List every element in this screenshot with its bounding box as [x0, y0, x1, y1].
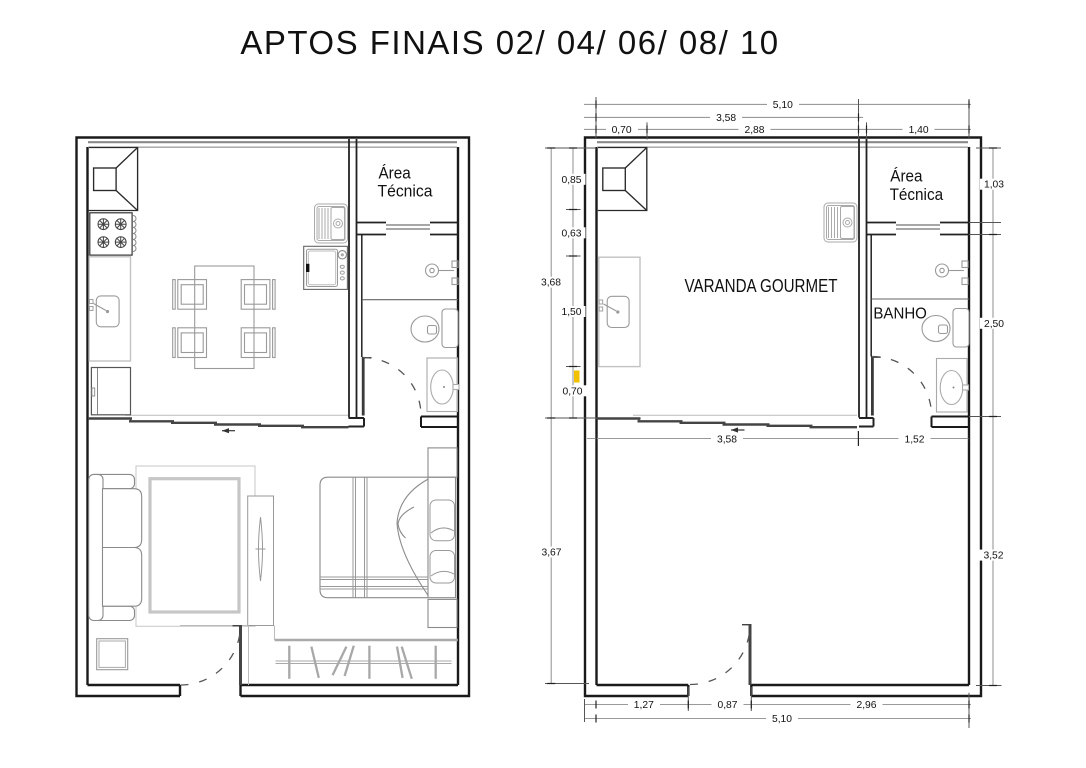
- svg-text:3,58: 3,58: [717, 434, 737, 445]
- svg-text:VARANDA GOURMET: VARANDA GOURMET: [685, 275, 838, 296]
- svg-text:0,63: 0,63: [561, 228, 581, 239]
- svg-text:1,50: 1,50: [561, 307, 581, 318]
- svg-text:3,52: 3,52: [983, 551, 1003, 562]
- svg-text:5,10: 5,10: [772, 714, 792, 725]
- svg-text:0,85: 0,85: [561, 175, 581, 186]
- svg-text:1,27: 1,27: [634, 700, 654, 711]
- svg-text:3,58: 3,58: [716, 113, 736, 124]
- svg-text:3,67: 3,67: [541, 548, 561, 559]
- svg-text:BANHO: BANHO: [873, 306, 927, 323]
- svg-text:2,50: 2,50: [984, 319, 1004, 330]
- svg-text:APTOS FINAIS 02/ 04/ 06/ 08/ 1: APTOS FINAIS 02/ 04/ 06/ 08/ 10: [240, 24, 779, 61]
- svg-text:Área: Área: [890, 167, 922, 186]
- svg-text:0,70: 0,70: [612, 125, 632, 136]
- svg-text:0,70: 0,70: [562, 386, 582, 397]
- svg-text:2,88: 2,88: [744, 125, 764, 136]
- svg-text:1,03: 1,03: [984, 180, 1004, 191]
- svg-text:1,40: 1,40: [909, 125, 929, 136]
- svg-text:5,10: 5,10: [773, 100, 793, 111]
- svg-text:Técnica: Técnica: [890, 186, 944, 204]
- svg-text:1,52: 1,52: [904, 434, 924, 445]
- svg-text:0,87: 0,87: [717, 700, 737, 711]
- svg-text:2,96: 2,96: [856, 700, 876, 711]
- svg-text:Área: Área: [379, 164, 411, 183]
- svg-text:3,68: 3,68: [541, 278, 561, 289]
- svg-text:Técnica: Técnica: [378, 182, 433, 200]
